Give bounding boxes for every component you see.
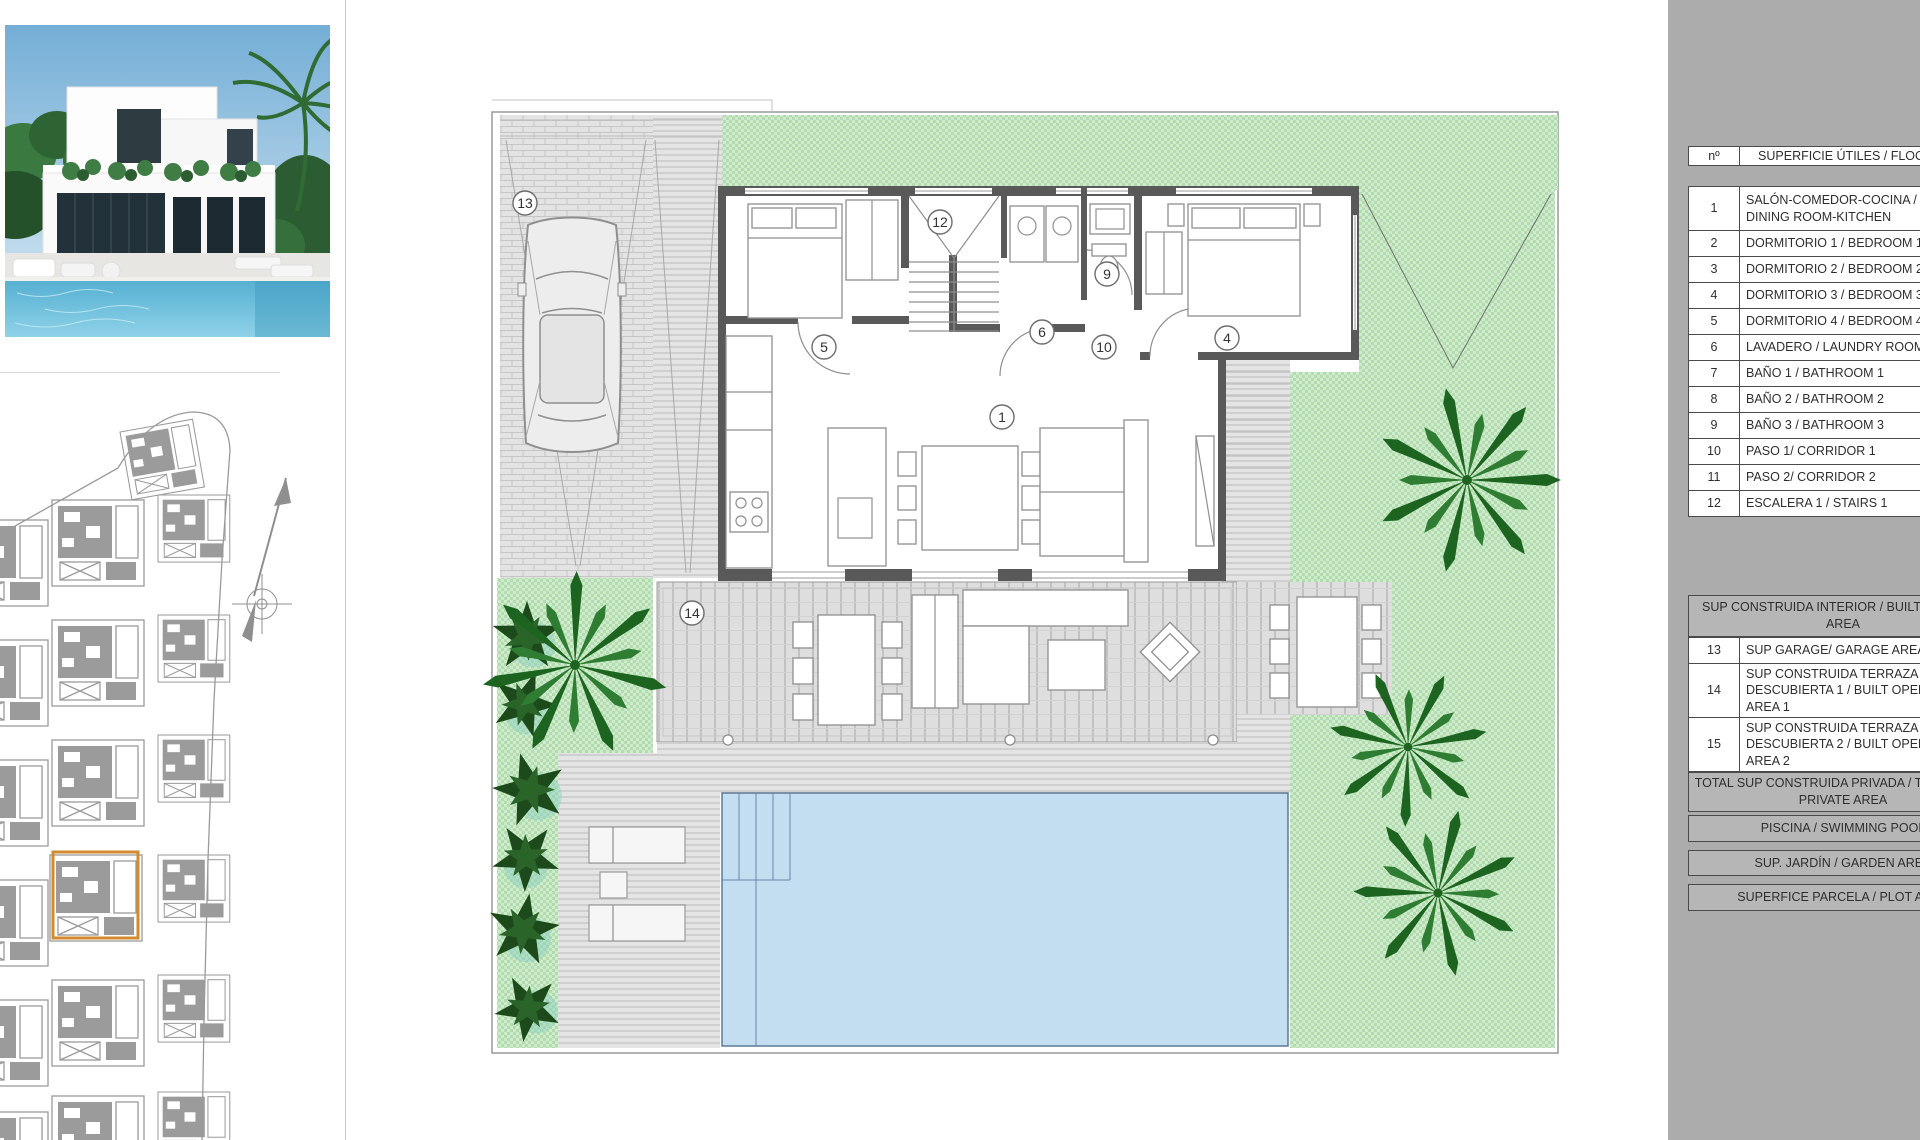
room-label-laundry: 6 [1030, 320, 1054, 344]
site-plan [0, 330, 345, 1140]
legend-built-table: 13SUP GARAGE/ GARAGE AREA 14SUP CONSTRUI… [1688, 637, 1920, 772]
swimming-pool [722, 793, 1288, 1046]
pool-paving [558, 753, 720, 1048]
pool-row: PISCINA / SWIMMING POOL [1688, 815, 1920, 842]
svg-text:9: 9 [1103, 266, 1111, 282]
svg-text:6: 6 [1038, 324, 1046, 340]
legend-header-num: nº [1689, 147, 1740, 166]
plot-area-row: SUPERFICE PARCELA / PLOT AREA [1688, 884, 1920, 911]
legend-panel: nº SUPERFICIE ÚTILES / FLOOR AREAS 1SALÓ… [1668, 0, 1920, 1140]
table-row: 11PASO 2/ CORRIDOR 2 [1689, 465, 1920, 491]
table-row: 14SUP CONSTRUIDA TERRAZA DESCUBIERTA 1 /… [1689, 664, 1920, 718]
legend-header-title: SUPERFICIE ÚTILES / FLOOR AREAS [1740, 147, 1920, 166]
table-row: 13SUP GARAGE/ GARAGE AREA [1689, 638, 1920, 664]
svg-text:5: 5 [820, 339, 828, 355]
table-row: 4DORMITORIO 3 / BEDROOM 3 [1689, 283, 1920, 309]
photo-pool [5, 277, 330, 337]
room-label-bath3: 9 [1095, 262, 1119, 286]
north-arrow-icon [232, 478, 292, 642]
svg-text:4: 4 [1223, 330, 1231, 346]
room-label-corridor1: 10 [1092, 335, 1116, 359]
built-interior-header: SUP CONSTRUIDA INTERIOR / BUILT INTERIOR… [1688, 595, 1920, 637]
vertical-divider [345, 0, 346, 1140]
legend-rooms-table: 1SALÓN-COMEDOR-COCINA / LIVING-DINING RO… [1688, 186, 1920, 517]
table-row: 9BAÑO 3 / BATHROOM 3 [1689, 413, 1920, 439]
svg-text:10: 10 [1096, 339, 1112, 355]
side-walkway [1222, 360, 1290, 582]
villa-photo [5, 25, 330, 337]
site-plot-units [0, 419, 230, 1140]
photo-terrace [5, 253, 330, 281]
room-label-bedroom4: 5 [812, 335, 836, 359]
table-row: 15SUP CONSTRUIDA TERRAZA DESCUBIERTA 2 /… [1689, 718, 1920, 772]
table-row: 2DORMITORIO 1 / BEDROOM 1 [1689, 231, 1920, 257]
svg-text:1: 1 [998, 409, 1006, 425]
deck-terrace [657, 582, 1392, 793]
table-row: 8BAÑO 2 / BATHROOM 2 [1689, 387, 1920, 413]
legend-header-row: nº SUPERFICIE ÚTILES / FLOOR AREAS [1689, 147, 1920, 166]
svg-text:12: 12 [932, 214, 948, 230]
legend-header: nº SUPERFICIE ÚTILES / FLOOR AREAS [1688, 146, 1920, 166]
table-row: 5DORMITORIO 4 / BEDROOM 4 [1689, 309, 1920, 335]
svg-text:14: 14 [684, 605, 700, 621]
room-label-garage: 13 [513, 191, 537, 215]
table-row: 10PASO 1/ CORRIDOR 1 [1689, 439, 1920, 465]
room-label-terrace1: 14 [680, 601, 704, 625]
garden-row: SUP. JARDÍN / GARDEN AREA [1688, 850, 1920, 876]
svg-text:13: 13 [517, 195, 533, 211]
room-label-bedroom3: 4 [1215, 326, 1239, 350]
left-column-divider [0, 372, 280, 373]
driveway [500, 115, 722, 578]
laundry-appliances [1010, 206, 1078, 262]
table-row: 6LAVADERO / LAUNDRY ROOM [1689, 335, 1920, 361]
table-row: 7BAÑO 1 / BATHROOM 1 [1689, 361, 1920, 387]
room-label-living: 1 [990, 405, 1014, 429]
table-row: 12ESCALERA 1 / STAIRS 1 [1689, 491, 1920, 517]
car-icon [518, 218, 626, 453]
table-row: 1SALÓN-COMEDOR-COCINA / LIVING-DINING RO… [1689, 187, 1920, 231]
floor-plan-drawing: 13 12 9 5 6 10 4 1 14 [440, 80, 1620, 1080]
total-built-row: TOTAL SUP CONSTRUIDA PRIVADA / TOTAL BUI… [1688, 772, 1920, 812]
table-row: 3DORMITORIO 2 / BEDROOM 2 [1689, 257, 1920, 283]
room-label-stairs: 12 [928, 210, 952, 234]
